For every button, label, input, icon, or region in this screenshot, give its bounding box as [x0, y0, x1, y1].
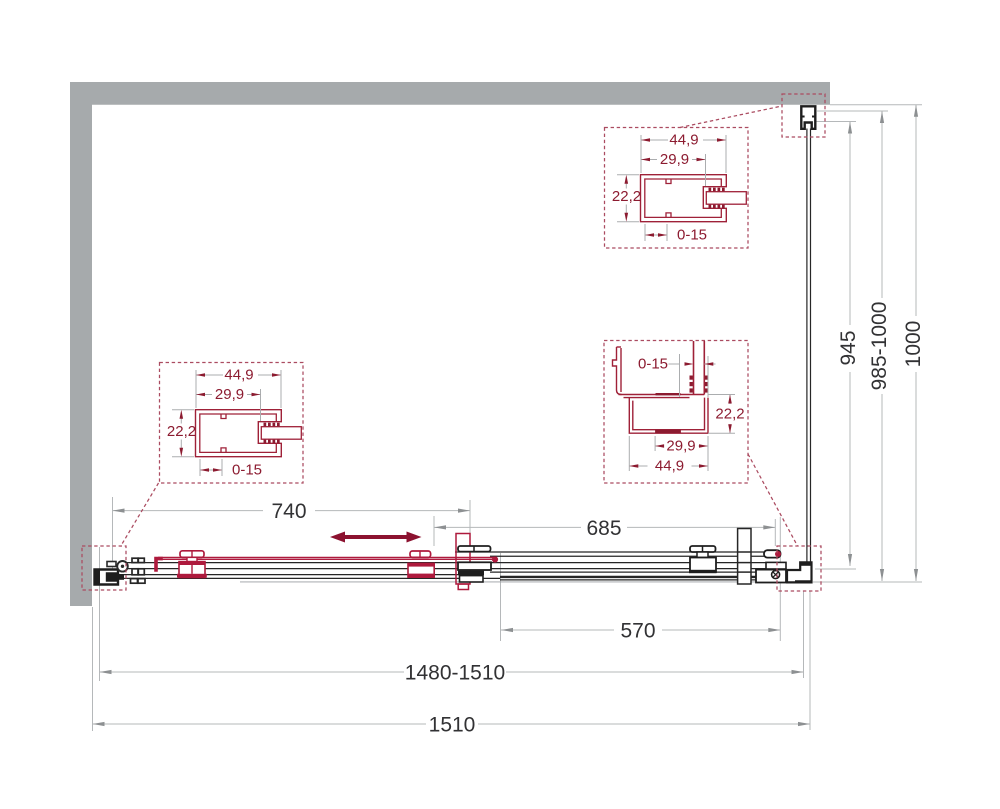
svg-text:29,9: 29,9 — [666, 438, 695, 455]
svg-text:985-1000: 985-1000 — [868, 302, 891, 391]
svg-text:0-15: 0-15 — [638, 356, 668, 373]
svg-text:685: 685 — [586, 517, 621, 540]
svg-text:570: 570 — [620, 620, 655, 643]
svg-text:44,9: 44,9 — [655, 458, 684, 475]
svg-text:1000: 1000 — [902, 321, 925, 368]
svg-text:22,2: 22,2 — [715, 406, 744, 423]
svg-text:1480-1510: 1480-1510 — [405, 662, 505, 685]
svg-text:945: 945 — [837, 330, 860, 365]
svg-text:1510: 1510 — [429, 714, 476, 737]
svg-text:740: 740 — [271, 500, 306, 523]
